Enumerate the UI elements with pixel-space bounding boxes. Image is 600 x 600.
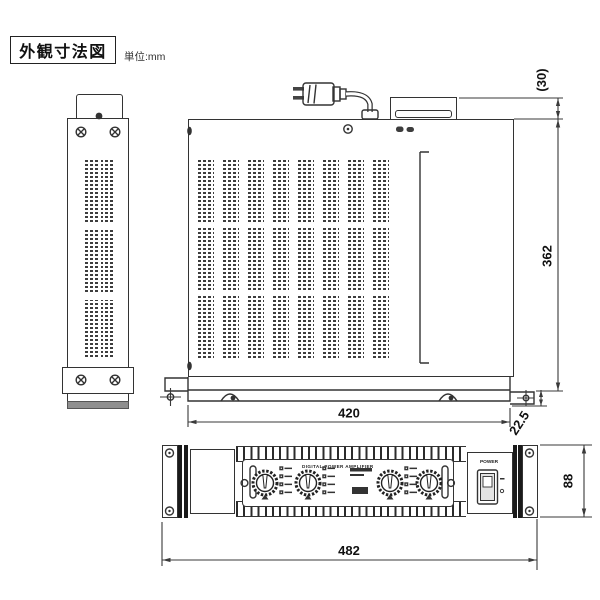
dim-482-label: 482: [338, 543, 360, 558]
dimension-drawing-page: 外観寸法図 単位:mm: [0, 0, 600, 600]
side-view-front-flange: [62, 367, 134, 394]
side-view-rear-protrusion: [76, 94, 123, 120]
rack-ear-right: [522, 445, 538, 518]
front-dark-bar: [184, 445, 188, 518]
vent-grid: [198, 228, 398, 290]
rack-ear-left: [162, 445, 178, 518]
front-dark-bar: [513, 445, 517, 518]
dim-22-5-label: 22.5: [506, 408, 532, 437]
dim-30: (30): [459, 68, 563, 119]
title-box: 外観寸法図: [10, 36, 116, 64]
vent-grid: [198, 160, 398, 222]
side-view-base-strip: [67, 401, 129, 409]
top-view-ear-left: [160, 378, 188, 406]
power-plug-icon: [293, 83, 346, 105]
unit-label: 単位:mm: [124, 49, 165, 64]
vent-grid: [85, 300, 114, 357]
dim-482: 482: [162, 519, 537, 570]
vent-grid: [198, 296, 398, 358]
dim-88-label: 88: [561, 474, 576, 488]
dim-88: 88: [540, 445, 592, 517]
power-section: [467, 452, 513, 514]
power-cord: [346, 94, 378, 119]
top-view-ear-right: [510, 390, 534, 406]
front-dark-bar: [178, 445, 182, 518]
control-panel: [242, 459, 454, 507]
blank-panel: [190, 449, 235, 514]
vent-grid: [85, 228, 114, 292]
dim-420-label: 420: [338, 406, 360, 421]
top-view-front-panel: [188, 377, 510, 401]
rear-protrusion-plate: [395, 110, 452, 118]
front-dark-bar: [518, 445, 522, 518]
dim-362: 362: [536, 119, 563, 391]
dim-420: 420: [188, 405, 510, 427]
dim-22-5: 22.5: [506, 390, 547, 438]
dim-362-label: 362: [540, 245, 555, 267]
vent-grid: [85, 160, 114, 222]
dim-30-label: (30): [534, 68, 549, 91]
page-title: 外観寸法図: [19, 38, 107, 62]
